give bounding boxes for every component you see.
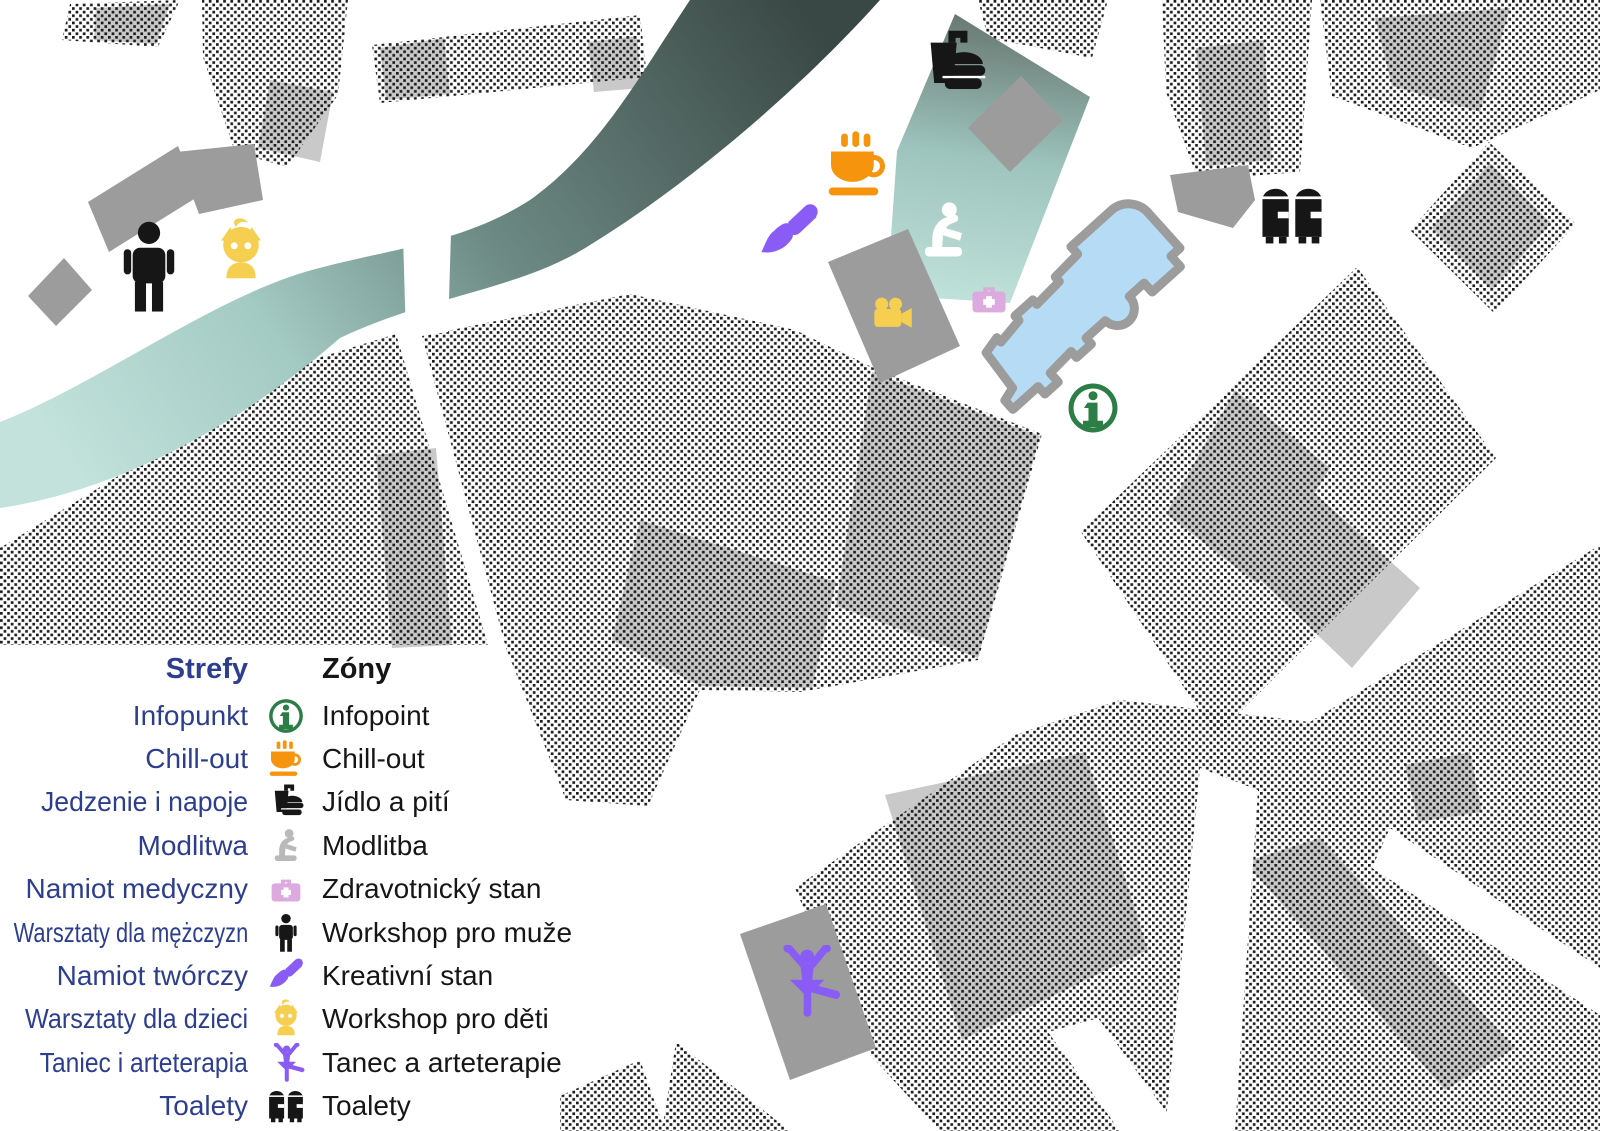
first-aid-kit-icon	[266, 869, 306, 909]
bridge	[402, 200, 452, 338]
legend-label-pl: Chill-out	[145, 743, 250, 775]
dancer-icon	[266, 1043, 306, 1083]
legend-label-cz: Infopoint	[322, 700, 429, 732]
legend-label-cz: Kreativní stan	[322, 960, 493, 992]
toilets-icon	[266, 1086, 306, 1126]
legend-label-pl: Toalety	[159, 1090, 250, 1122]
info-icon	[1069, 384, 1118, 433]
legend-row-chillout: Chill-out Chill-out	[0, 737, 566, 780]
legend-label-cz: Workshop pro děti	[322, 1003, 549, 1035]
legend-label-pl: Warsztaty dla mężczyzn	[14, 917, 250, 949]
legend-row-medical: Namiot medyczny Zdravotnický stan	[0, 868, 566, 911]
legend-label-cz: Chill-out	[322, 743, 425, 775]
legend-label-pl: Jedzenie i napoje	[41, 786, 250, 818]
legend-label-pl: Modlitwa	[138, 830, 250, 862]
legend-row-dance: Taniec i arteterapia Tanec a arteterapie	[0, 1041, 566, 1084]
legend-row-toilets: Toalety Toalety	[0, 1085, 566, 1128]
coffee-cup-icon	[266, 739, 306, 779]
legend-row-prayer: Modlitwa Modlitba	[0, 824, 566, 867]
legend: Strefy Zóny Infopunkt Infopoint Chill-ou…	[0, 644, 566, 1128]
legend-label-pl: Namiot twórczy	[57, 960, 250, 992]
praying-person-icon	[266, 826, 306, 866]
child-icon	[266, 999, 306, 1039]
info-icon	[266, 696, 306, 736]
legend-row-workshop-kids: Warsztaty dla dzieci Workshop pro děti	[0, 998, 566, 1041]
legend-row-creative: Namiot twórczy Kreativní stan	[0, 954, 566, 997]
legend-label-cz: Workshop pro muže	[322, 917, 572, 949]
legend-row-food: Jedzenie i napoje Jídlo a pití	[0, 781, 566, 824]
legend-label-pl: Taniec i arteterapia	[40, 1047, 250, 1079]
legend-heading-cz: Zóny	[322, 653, 391, 686]
legend-label-cz: Zdravotnický stan	[322, 873, 541, 905]
festival-map: Strefy Zóny Infopunkt Infopoint Chill-ou…	[0, 0, 1600, 1131]
legend-heading: Strefy Zóny	[0, 644, 566, 694]
legend-label-cz: Tanec a arteterapie	[322, 1047, 562, 1079]
man-icon	[266, 913, 306, 953]
legend-label-cz: Jídlo a pití	[322, 786, 450, 818]
legend-label-cz: Modlitba	[322, 830, 428, 862]
legend-label-cz: Toalety	[322, 1090, 411, 1122]
food-drink-icon	[266, 782, 306, 822]
legend-row-workshop-men: Warsztaty dla mężczyzn Workshop pro muže	[0, 911, 566, 954]
legend-heading-pl: Strefy	[166, 653, 250, 686]
paintbrush-icon	[266, 956, 306, 996]
legend-row-infopoint: Infopunkt Infopoint	[0, 694, 566, 737]
legend-label-pl: Warsztaty dla dzieci	[25, 1003, 250, 1035]
legend-label-pl: Infopunkt	[133, 700, 250, 732]
legend-label-pl: Namiot medyczny	[25, 873, 250, 905]
